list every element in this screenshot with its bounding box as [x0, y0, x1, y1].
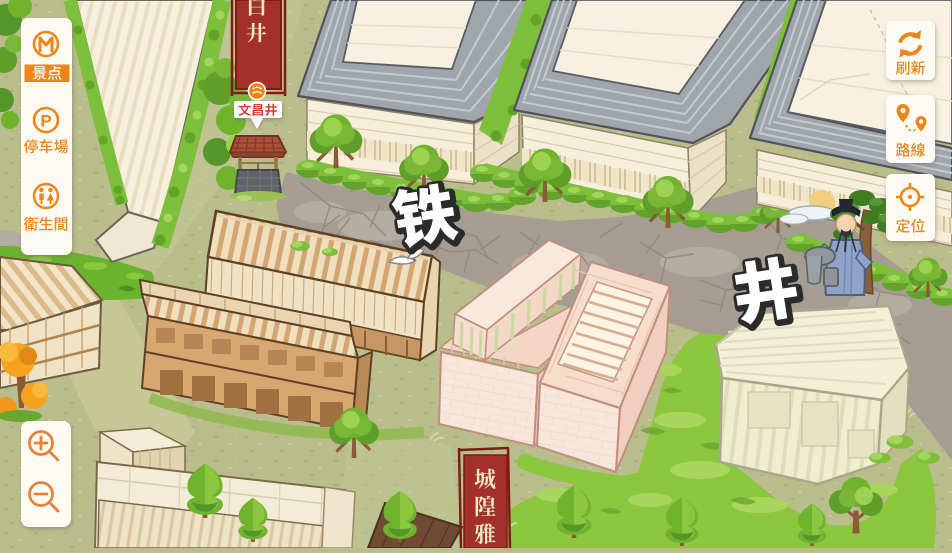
svg-text:P: P [40, 112, 51, 131]
